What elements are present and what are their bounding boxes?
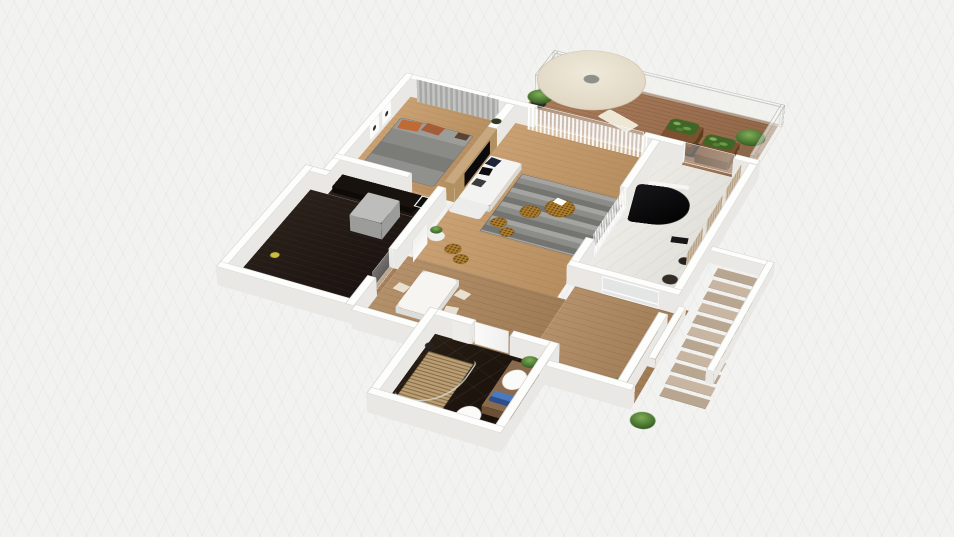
floor-plan <box>157 89 790 478</box>
piano-bench-top <box>670 236 688 244</box>
bush-southeast-top <box>626 409 659 432</box>
wall-stairs-east-face-top <box>706 261 775 373</box>
floorplan-3d-viewport[interactable] <box>0 0 954 537</box>
